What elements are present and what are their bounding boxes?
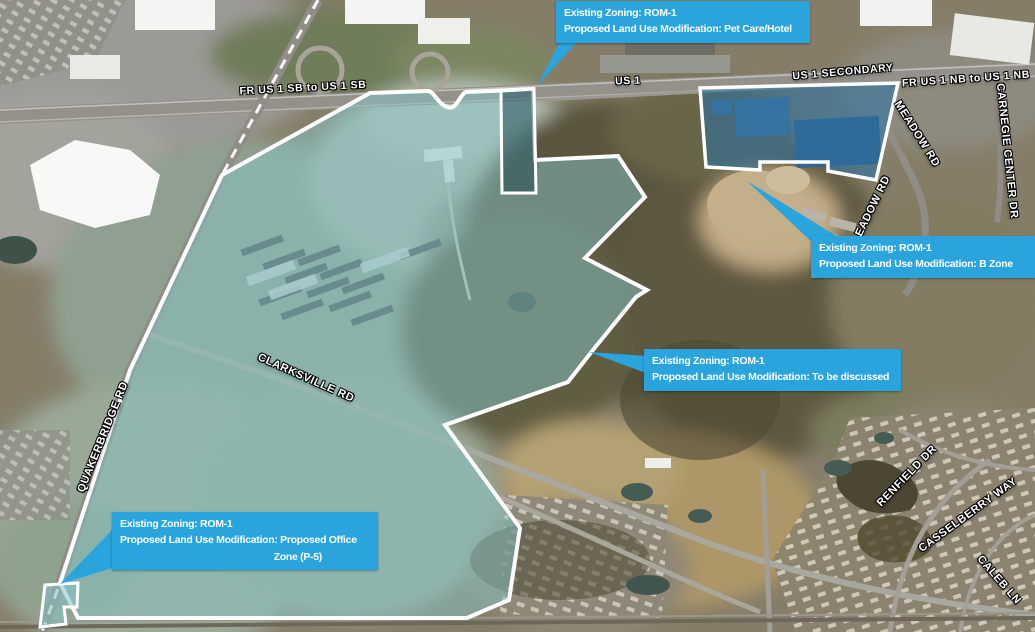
callout-proposed-office-zone: Existing Zoning: ROM-1 Proposed Land Use… [112, 512, 378, 570]
callout-b-zone: Existing Zoning: ROM-1 Proposed Land Use… [811, 236, 1035, 278]
callout-line: Existing Zoning: ROM-1 [564, 5, 802, 21]
callout-line: Proposed Land Use Modification: Proposed… [120, 532, 370, 548]
callout-to-be-discussed: Existing Zoning: ROM-1 Proposed Land Use… [644, 349, 901, 391]
callout-pet-care-hotel: Existing Zoning: ROM-1 Proposed Land Use… [556, 1, 810, 43]
aerial-map: FR US 1 SB to US 1 SB US 1 US 1 SECONDAR… [0, 0, 1035, 632]
callout-line: Zone (P-5) [120, 549, 370, 565]
building [645, 458, 671, 468]
residential-west [0, 430, 70, 520]
zone-main-parcel-wooded-strip [501, 89, 536, 193]
callout-line: Existing Zoning: ROM-1 [819, 240, 1027, 256]
callout-line: Existing Zoning: ROM-1 [652, 353, 893, 369]
callout-line: Proposed Land Use Modification: Pet Care… [564, 21, 802, 37]
callout-line: Existing Zoning: ROM-1 [120, 516, 370, 532]
callout-line: Proposed Land Use Modification: To be di… [652, 369, 893, 385]
callout-line: Proposed Land Use Modification: B Zone [819, 256, 1027, 272]
